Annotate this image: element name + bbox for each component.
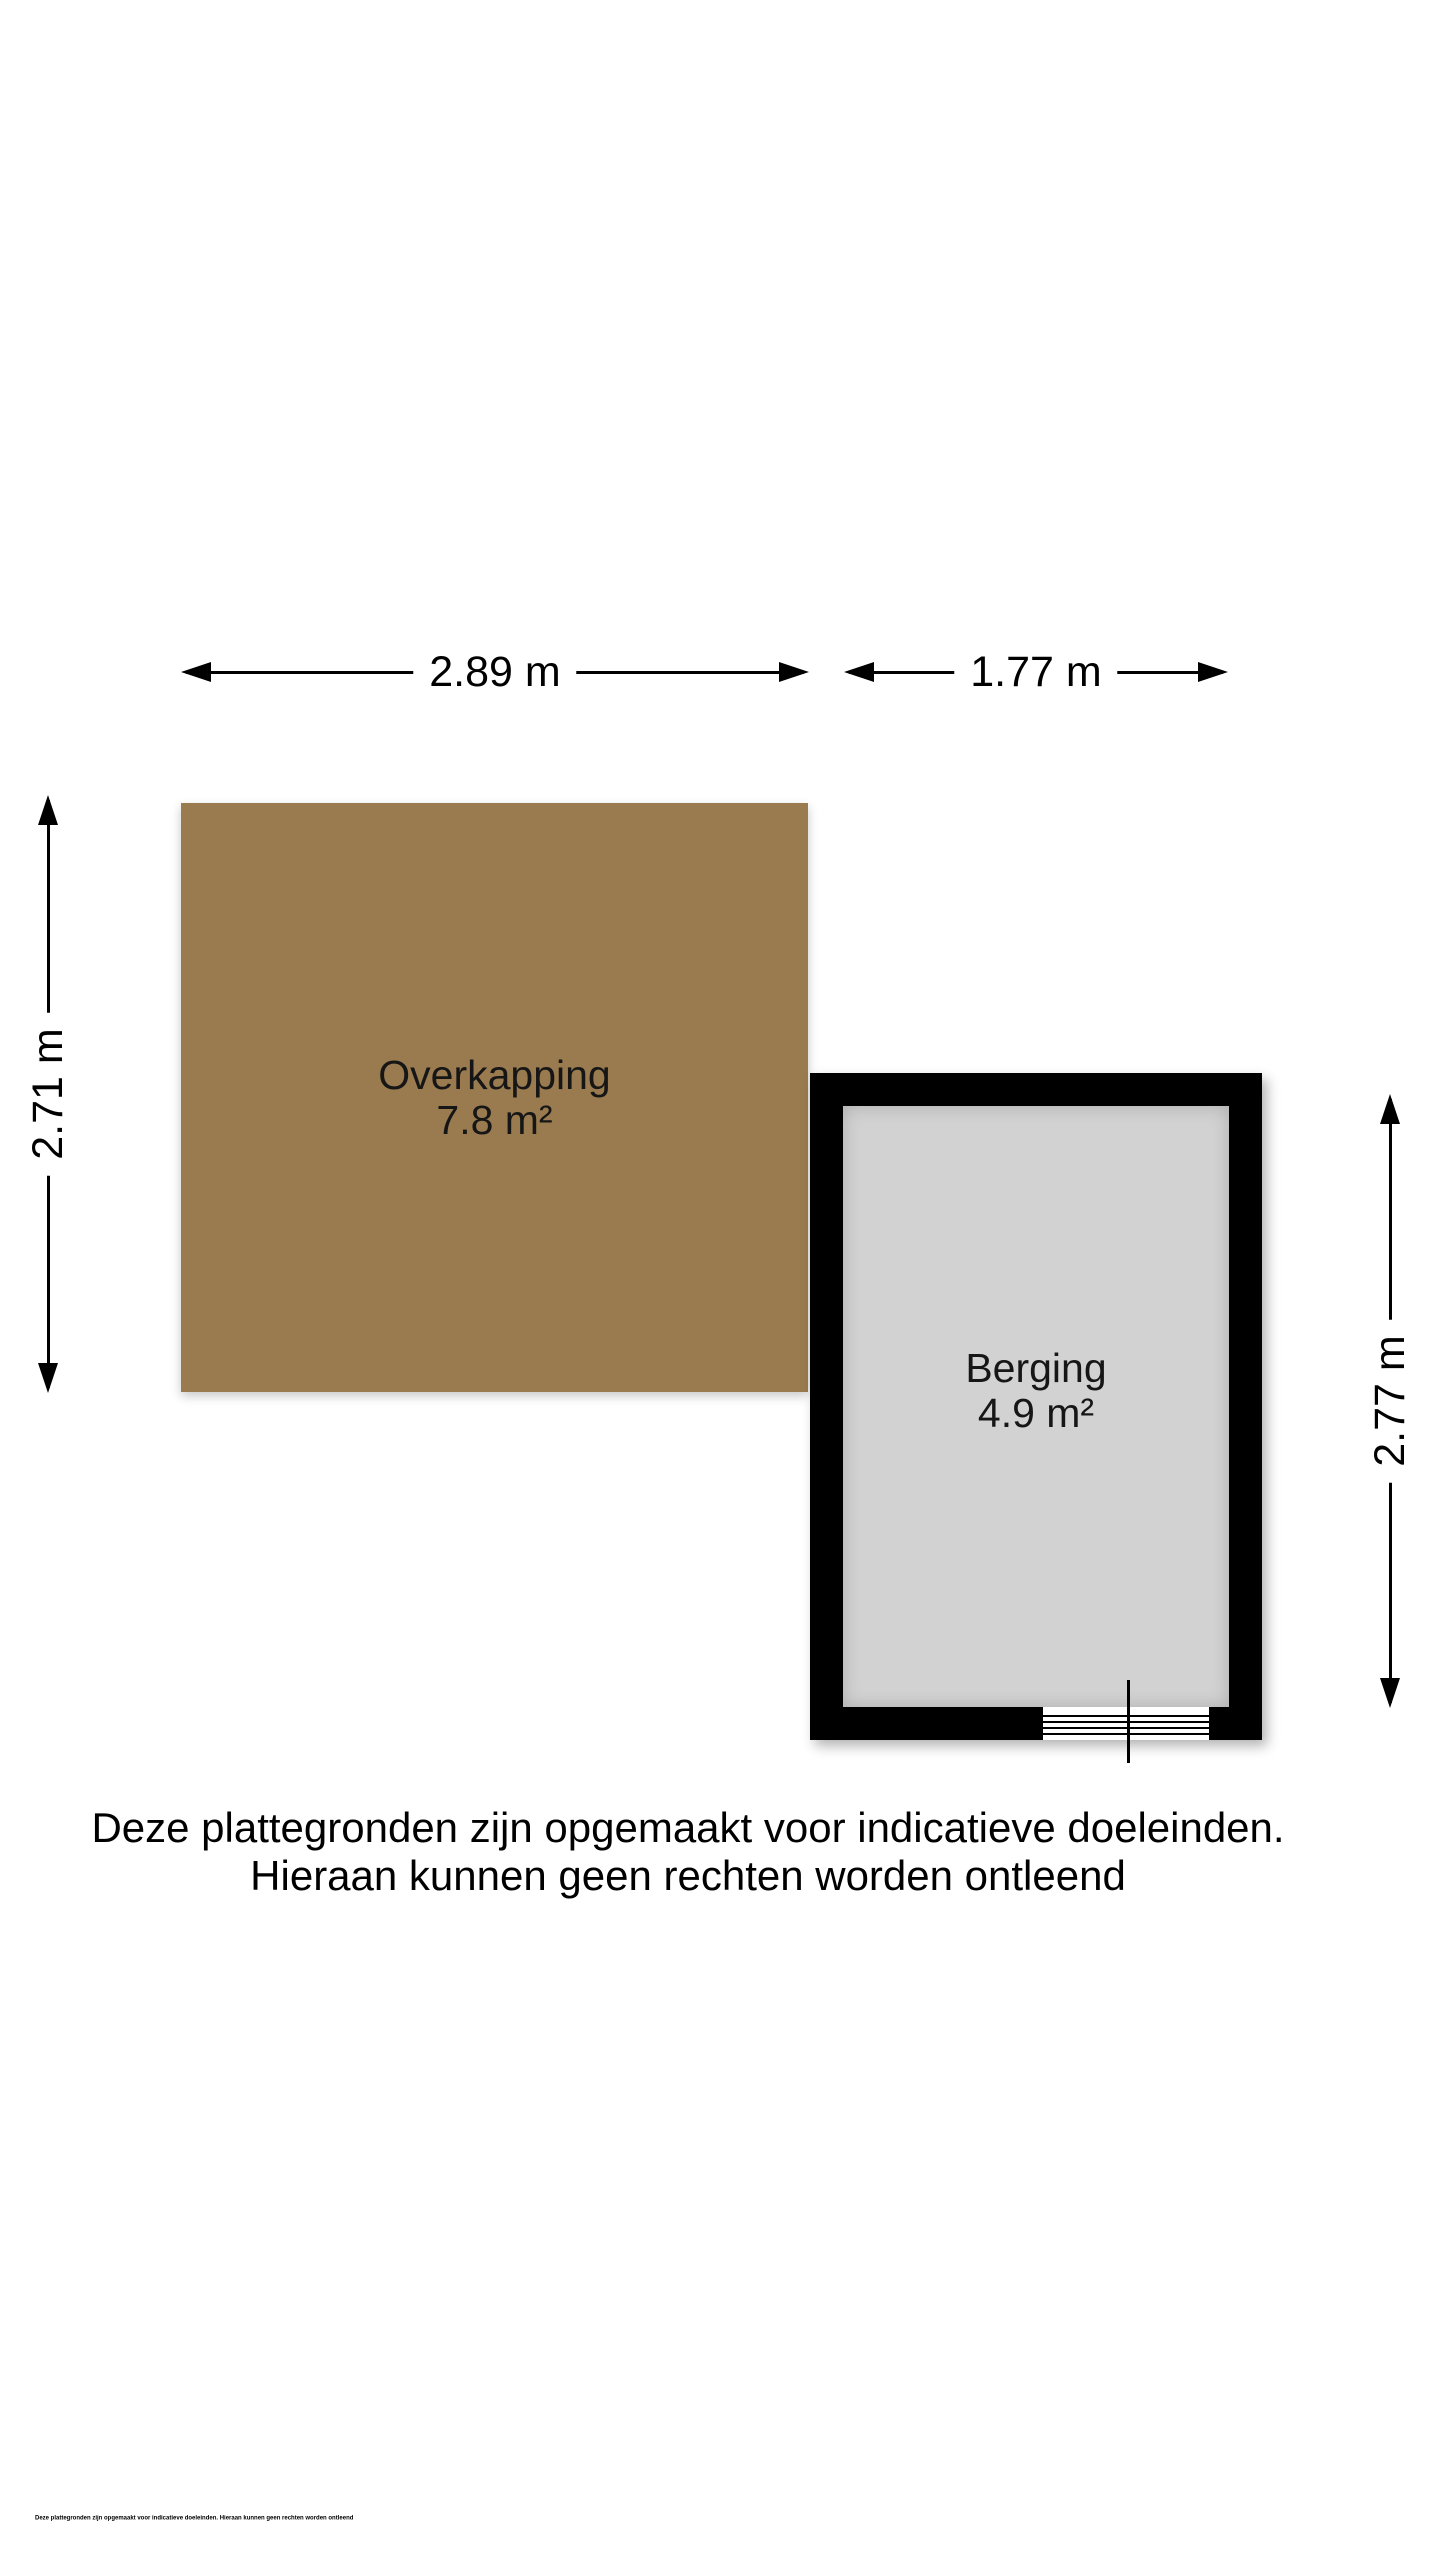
disclaimer-line-2: Hieraan kunnen geen rechten worden ontle… — [0, 1852, 1376, 1900]
room-area: 4.9 m² — [965, 1391, 1106, 1436]
arrowhead-right-icon — [779, 662, 809, 682]
arrowhead-left-icon — [844, 662, 874, 682]
dimension-label: 1.77 m — [954, 646, 1117, 698]
arrowhead-up-icon — [38, 795, 58, 825]
room-overkapping-label: Overkapping 7.8 m² — [378, 1053, 610, 1143]
dimension-label: 2.71 m — [22, 1012, 74, 1175]
room-berging-floor: Berging 4.9 m² — [843, 1106, 1229, 1707]
room-name: Berging — [965, 1346, 1106, 1391]
dimension-label: 2.89 m — [413, 646, 576, 698]
room-area: 7.8 m² — [378, 1098, 610, 1143]
arrowhead-left-icon — [181, 662, 211, 682]
disclaimer-line-1: Deze plattegronden zijn opgemaakt voor i… — [0, 1804, 1376, 1852]
door-slat-line — [1043, 1715, 1209, 1717]
door-divider-line — [1127, 1680, 1130, 1763]
disclaimer-text: Deze plattegronden zijn opgemaakt voor i… — [0, 1804, 1376, 1900]
arrowhead-down-icon — [1380, 1678, 1400, 1708]
arrowhead-down-icon — [38, 1363, 58, 1393]
fine-print-text: Deze plattegronden zijn opgemaakt voor i… — [35, 2514, 353, 2521]
door-slat-line — [1043, 1721, 1209, 1723]
room-overkapping: Overkapping 7.8 m² — [181, 803, 808, 1392]
door-slat-line — [1043, 1733, 1209, 1735]
door-symbol — [1043, 1707, 1209, 1740]
arrowhead-up-icon — [1380, 1094, 1400, 1124]
arrowhead-right-icon — [1198, 662, 1228, 682]
room-name: Overkapping — [378, 1053, 610, 1098]
dimension-label: 2.77 m — [1364, 1319, 1416, 1482]
door-slat-line — [1043, 1727, 1209, 1729]
room-berging-label: Berging 4.9 m² — [965, 1346, 1106, 1436]
room-berging-walls: Berging 4.9 m² — [810, 1073, 1262, 1740]
floorplan-canvas: 2.89 m 1.77 m 2.71 m 2.77 m Overkapping … — [0, 0, 1440, 2560]
